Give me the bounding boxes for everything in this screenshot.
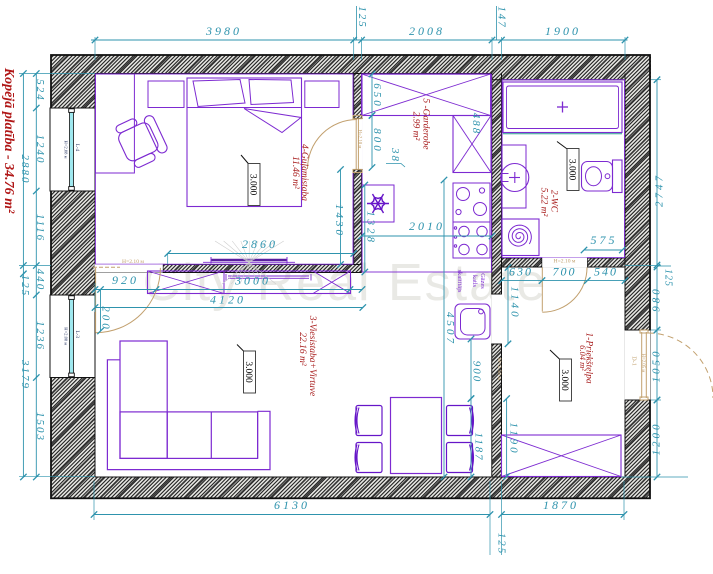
svg-text:575: 575	[591, 233, 618, 247]
svg-text:3.000: 3.000	[567, 159, 577, 181]
svg-text:488: 488	[470, 113, 482, 136]
svg-text:5 -Garderobe: 5 -Garderobe	[421, 98, 431, 149]
svg-text:11.46 m²: 11.46 m²	[290, 156, 300, 189]
svg-text:1328: 1328	[365, 211, 377, 245]
svg-text:L-4: L-4	[74, 144, 80, 152]
svg-text:2.99 m²: 2.99 m²	[411, 112, 421, 141]
svg-text:1240: 1240	[34, 135, 46, 165]
svg-text:440: 440	[34, 269, 46, 292]
svg-text:200: 200	[100, 306, 112, 332]
svg-text:H=2.10 м: H=2.10 м	[122, 259, 144, 265]
svg-text:1870: 1870	[543, 498, 579, 512]
svg-text:3179: 3179	[19, 359, 31, 390]
svg-text:2008: 2008	[409, 24, 445, 38]
svg-text:Gāzes: Gāzes	[479, 273, 486, 289]
svg-text:22.16 m²: 22.16 m²	[297, 332, 307, 366]
svg-text:H=2.08 м: H=2.08 м	[63, 327, 68, 345]
svg-text:katls: katls	[471, 275, 478, 288]
svg-text:920: 920	[112, 273, 139, 287]
svg-text:630: 630	[509, 265, 533, 279]
svg-text:3-Viesistaba+Virtuve: 3-Viesistaba+Virtuve	[307, 315, 317, 396]
svg-text:1200: 1200	[651, 422, 663, 456]
svg-text:1050: 1050	[651, 349, 663, 383]
svg-text:1900: 1900	[545, 24, 581, 38]
svg-text:6.04 m²: 6.04 m²	[578, 345, 588, 371]
svg-text:2010: 2010	[409, 219, 445, 233]
svg-text:2747: 2747	[654, 173, 666, 207]
svg-text:38: 38	[389, 147, 401, 163]
svg-text:H=2.05 м: H=2.05 м	[640, 354, 645, 373]
svg-text:2880: 2880	[19, 155, 31, 185]
svg-text:5.22 m²: 5.22 m²	[539, 188, 549, 217]
svg-text:524: 524	[34, 79, 46, 102]
svg-text:H=2.08 м: H=2.08 м	[63, 140, 68, 158]
svg-text:skaitītājs: skaitītājs	[456, 270, 463, 293]
svg-text:1236: 1236	[34, 321, 46, 351]
svg-text:H=2.50 м: H=2.50 м	[496, 358, 502, 380]
svg-text:700: 700	[553, 265, 577, 279]
svg-text:125: 125	[663, 269, 674, 287]
svg-text:900: 900	[471, 361, 483, 384]
svg-text:1116: 1116	[34, 214, 46, 242]
svg-text:1140: 1140	[509, 286, 521, 319]
svg-text:980: 980	[651, 286, 663, 312]
svg-text:3.000: 3.000	[248, 174, 258, 196]
svg-text:2-WC: 2-WC	[549, 190, 559, 213]
svg-text:H=2.10 м: H=2.10 м	[357, 130, 362, 149]
svg-text:3.000: 3.000	[243, 361, 253, 383]
svg-text:H=2.10 м: H=2.10 м	[554, 258, 576, 264]
svg-text:540: 540	[594, 265, 618, 279]
svg-text:1430: 1430	[333, 204, 345, 238]
svg-text:1187: 1187	[473, 432, 485, 461]
svg-text:2860: 2860	[242, 237, 278, 251]
svg-text:125: 125	[356, 6, 368, 29]
svg-text:1503: 1503	[34, 412, 46, 442]
svg-text:4120: 4120	[210, 293, 246, 307]
svg-text:6130: 6130	[274, 498, 310, 512]
svg-text:1190: 1190	[508, 422, 520, 455]
svg-text:D-1: D-1	[631, 356, 638, 366]
svg-text:650: 650	[371, 83, 383, 109]
svg-text:4507: 4507	[444, 312, 456, 346]
svg-text:3980: 3980	[205, 24, 242, 38]
svg-text:800: 800	[371, 128, 383, 154]
svg-text:3.000: 3.000	[559, 369, 569, 391]
svg-text:3000: 3000	[234, 274, 271, 288]
svg-text:L-3: L-3	[74, 331, 80, 339]
svg-text:Kopējā platība - 34.76 m²: Kopējā platība - 34.76 m²	[1, 67, 16, 214]
svg-text:147: 147	[496, 6, 508, 29]
svg-text:125: 125	[496, 533, 508, 556]
svg-text:125: 125	[19, 275, 31, 298]
